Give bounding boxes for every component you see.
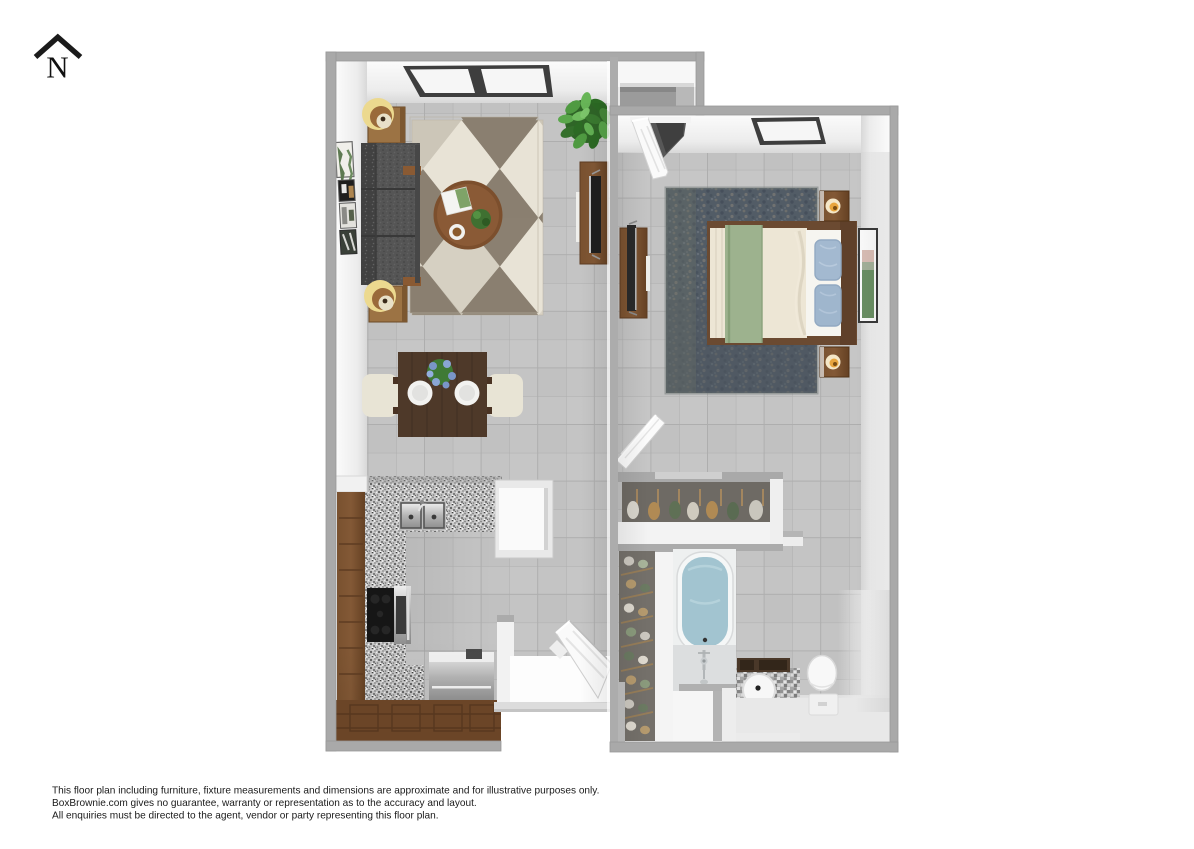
svg-text:BoxBrownie.com gives no guaran: BoxBrownie.com gives no guarantee, warra…: [52, 798, 477, 809]
svg-text:N: N: [46, 50, 68, 85]
svg-text:This floor plan including furn: This floor plan including furniture, fix…: [52, 786, 599, 797]
svg-text:All enquiries must be directed: All enquiries must be directed to the ag…: [52, 810, 439, 821]
